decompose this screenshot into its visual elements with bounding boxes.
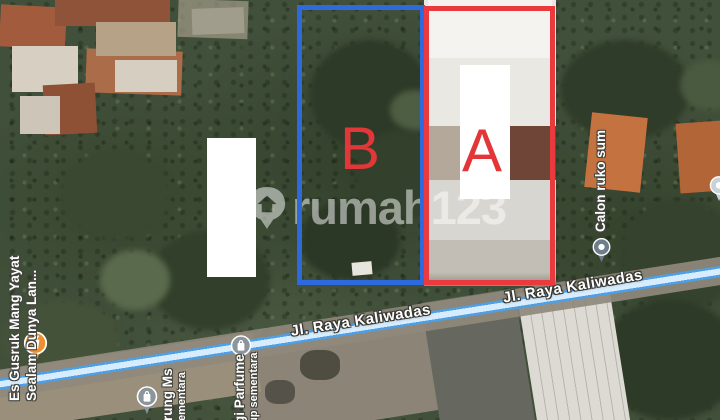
plot-b-label: B xyxy=(332,116,388,182)
building-roof xyxy=(115,60,177,92)
poi-label-rung-ms[interactable]: rung Ms ementara xyxy=(159,369,189,420)
satellite-map[interactable]: Jl. Raya Kaliwadas Jl. Raya Kaliwadas ru… xyxy=(0,0,720,420)
building-roof xyxy=(20,96,60,134)
tree-blob xyxy=(60,150,170,240)
ground-patch xyxy=(96,22,176,56)
place-pin-partial[interactable] xyxy=(708,175,720,207)
place-pin[interactable] xyxy=(591,237,612,268)
poi-label-es-gusruk[interactable]: Es Gusruk Mang Yayat Sealam Dunya Lan... xyxy=(6,256,40,401)
poi-name: Calon ruko sum xyxy=(592,130,609,232)
poi-status: up sementara xyxy=(248,352,261,420)
tree-blob xyxy=(100,250,170,310)
plot-a-label: A xyxy=(454,118,510,184)
white-mask-rect xyxy=(207,138,256,277)
ground-shadow xyxy=(265,380,295,404)
poi-label-calon-ruko[interactable]: Calon ruko sum xyxy=(592,130,609,232)
poi-name-line2: Sealam Dunya Lan... xyxy=(23,256,40,401)
poi-name: gi Parfume xyxy=(231,352,248,420)
ground-shadow xyxy=(300,350,340,380)
ground-patch xyxy=(177,0,248,39)
poi-name: Es Gusruk Mang Yayat xyxy=(6,256,23,401)
poi-status: ementara xyxy=(176,369,189,420)
shopping-bag-pin[interactable] xyxy=(135,385,159,420)
poi-label-parfume[interactable]: gi Parfume up sementara xyxy=(231,352,261,420)
poi-name: rung Ms xyxy=(159,369,176,420)
